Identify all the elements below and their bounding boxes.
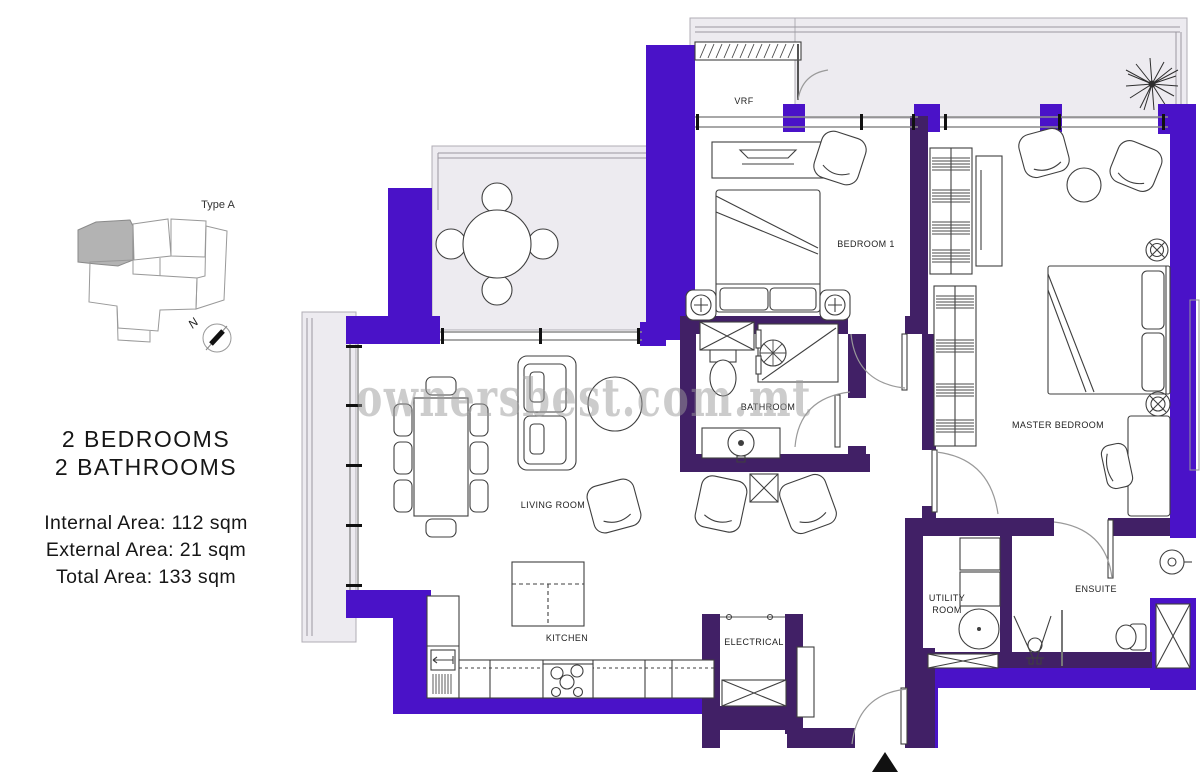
room-label-utility-line2: ROOM [932,605,962,615]
north-arrow: N [185,315,231,352]
room-label-kitchen: KITCHEN [546,633,588,643]
north-letter: N [185,315,201,331]
floor-plan-svg: Type A N 2 BEDROOMS 2 BATHROOMS Internal… [0,0,1200,782]
summary-block: 2 BEDROOMS 2 BATHROOMS Internal Area: 11… [44,426,248,588]
summary-bathrooms: 2 BATHROOMS [55,454,237,480]
room-label-bedroom1: BEDROOM 1 [837,239,895,249]
key-plan-type-label: Type A [201,199,235,211]
key-plan-unit-highlight [78,220,133,266]
room-label-electrical: ELECTRICAL [724,637,784,647]
key-plan: Type A N [78,199,235,352]
room-label-living-room: LIVING ROOM [521,500,585,510]
electrical-fixtures [722,680,786,706]
master-bedroom-furniture [930,126,1170,516]
room-label-utility-line1: UTILITY [929,593,965,603]
room-label-master-bedroom: MASTER BEDROOM [1012,420,1104,430]
summary-external-area: External Area: 21 sqm [46,539,246,561]
floor-plan-page: Type A N 2 BEDROOMS 2 BATHROOMS Internal… [0,0,1200,782]
kitchen-furniture [427,562,714,698]
watermark-text: ownersbest.com.mt [356,368,812,429]
ensuite-fixtures [1014,550,1192,668]
room-label-vrf: VRF [734,96,753,106]
bedroom1-furniture [686,128,869,320]
summary-internal-area: Internal Area: 112 sqm [44,512,248,534]
entrance-arrow [872,752,898,772]
utility-room-fixtures [928,538,1000,668]
summary-total-area: Total Area: 133 sqm [56,566,236,588]
terrace-top [795,18,1187,118]
room-label-ensuite: ENSUITE [1075,584,1117,594]
shaft-door [797,647,814,717]
summary-bedrooms: 2 BEDROOMS [62,426,230,452]
